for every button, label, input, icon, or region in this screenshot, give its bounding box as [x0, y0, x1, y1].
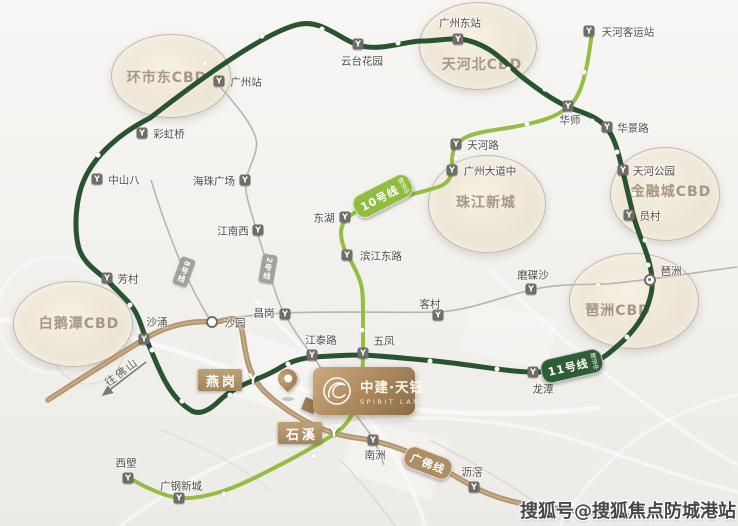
line-badge-label: 10号线 [357, 181, 401, 214]
metro-logo-icon-white: Y [329, 426, 338, 441]
project-name-cn: 中建·天钰 [360, 376, 428, 396]
metro-logo-icon-white: Y [248, 373, 257, 388]
line-badge: 广佛线 [401, 443, 456, 482]
highlight-station-badge: 燕岗 [198, 369, 242, 391]
line-badge: 10号线建设中 [349, 170, 417, 221]
line-badge-label: 广佛线 [408, 449, 447, 477]
project-name-block: 中建·天钰 SPIRIT LAND [360, 376, 428, 406]
watermark: 搜狐号@搜狐焦点防城港站 [520, 497, 736, 523]
line-badge: 11号线建设中 [538, 347, 605, 386]
project-name-en: SPIRIT LAND [360, 398, 428, 406]
line-badge-vertical: 2号线 [258, 253, 278, 284]
line-badge-vertical: 8号线 [172, 256, 196, 289]
project-logo-badge: 中建·天钰 SPIRIT LAND [313, 367, 415, 415]
line-badge-label: 11号线 [546, 354, 590, 379]
guangzhou-metro-location-map: 环市东CBD天河北CBD珠江新城金融城CBD琶洲CBD白鹅潭CBD Y广 [0, 0, 738, 526]
project-emblem-icon [321, 375, 353, 407]
highlight-station-badge: 石溪 [278, 422, 322, 444]
location-pin-shadow [282, 397, 294, 401]
badges-layer: 10号线建设中11号线建设中广佛线8号线2号线燕岗Y石溪Y [0, 0, 738, 526]
